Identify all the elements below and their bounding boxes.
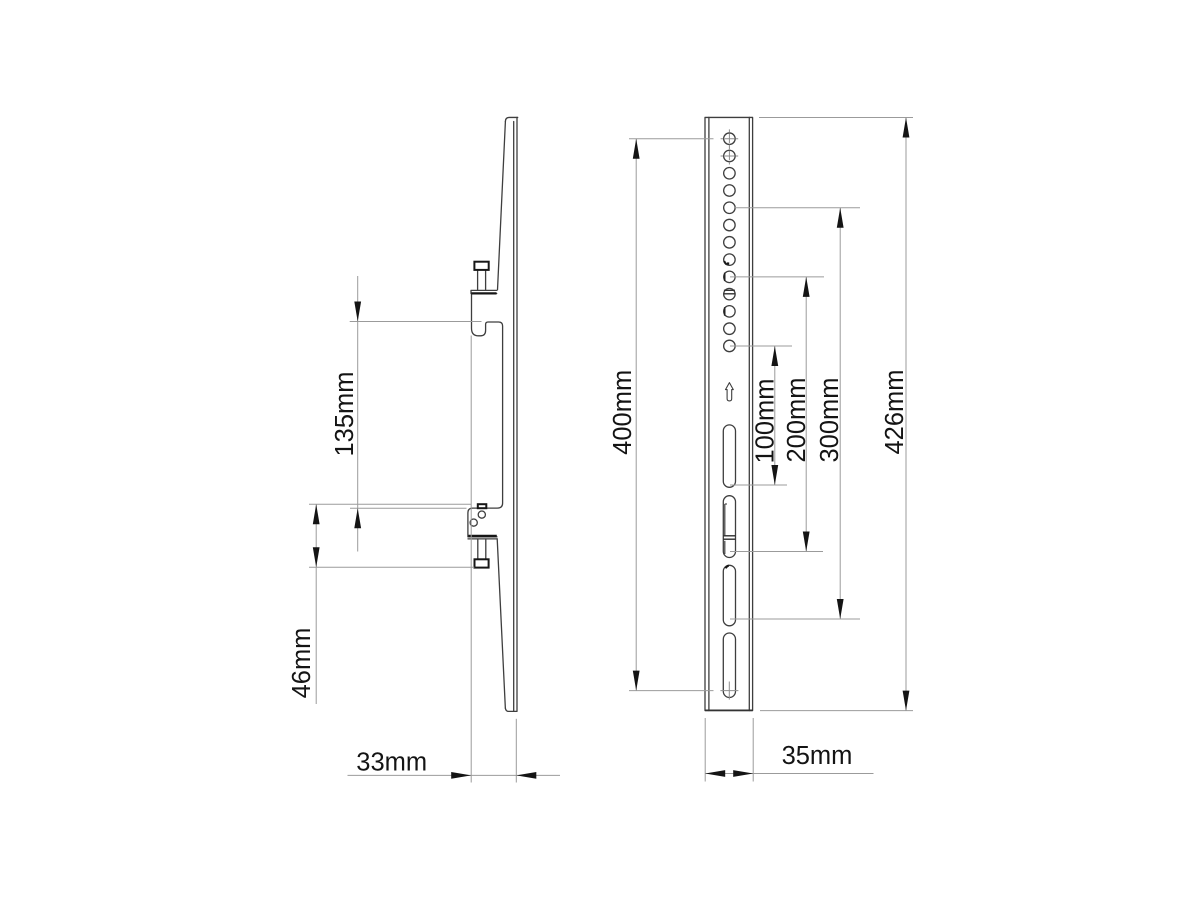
- svg-text:100mm: 100mm: [752, 378, 780, 463]
- svg-text:135mm: 135mm: [331, 371, 359, 456]
- svg-text:46mm: 46mm: [288, 628, 316, 699]
- svg-text:400mm: 400mm: [609, 370, 637, 455]
- svg-text:35mm: 35mm: [782, 742, 853, 770]
- svg-text:426mm: 426mm: [881, 369, 909, 454]
- svg-text:300mm: 300mm: [816, 377, 844, 462]
- svg-text:33mm: 33mm: [356, 749, 427, 777]
- svg-text:200mm: 200mm: [783, 377, 811, 462]
